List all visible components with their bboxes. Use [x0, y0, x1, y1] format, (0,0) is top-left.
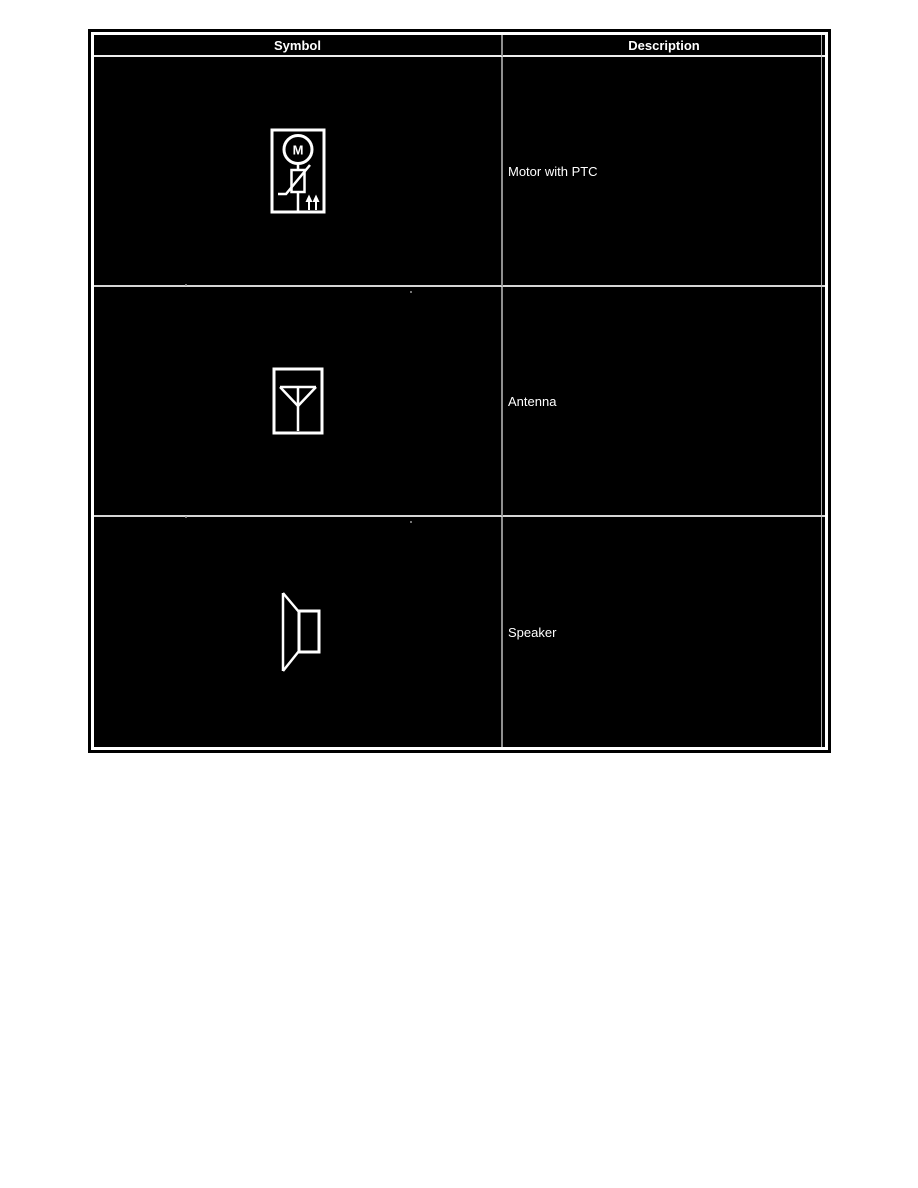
- header-cell-symbol: Symbol: [94, 35, 503, 57]
- table-row-2-description-cell: Antenna: [503, 287, 825, 517]
- scan-speck: [185, 284, 187, 286]
- table-row-1-symbol-cell: M: [94, 57, 503, 287]
- scan-speck: [410, 521, 412, 523]
- symbol-table-frame: Symbol Description M: [88, 29, 831, 753]
- header-description-label: Description: [628, 38, 700, 53]
- scan-artifact-line: [821, 35, 822, 747]
- scan-speck: [185, 516, 187, 518]
- table-row-3-description-cell: Speaker: [503, 517, 825, 747]
- table-row-1-description-cell: Motor with PTC: [503, 57, 825, 287]
- page: Symbol Description M: [0, 0, 918, 1188]
- header-cell-description: Description: [503, 35, 825, 57]
- description-label: Antenna: [508, 394, 556, 409]
- description-label: Motor with PTC: [508, 164, 598, 179]
- table-row-2-symbol-cell: [94, 287, 503, 517]
- scan-speck: [410, 291, 412, 293]
- description-label: Speaker: [508, 625, 556, 640]
- symbol-table: Symbol Description M: [91, 32, 828, 750]
- header-symbol-label: Symbol: [274, 38, 321, 53]
- symbol-table-grid: Symbol Description M: [94, 35, 825, 747]
- motor-letter: M: [292, 143, 303, 158]
- antenna-icon: [272, 367, 324, 435]
- speaker-icon: [275, 590, 321, 674]
- motor-with-ptc-icon: M: [268, 126, 328, 216]
- table-row-3-symbol-cell: [94, 517, 503, 747]
